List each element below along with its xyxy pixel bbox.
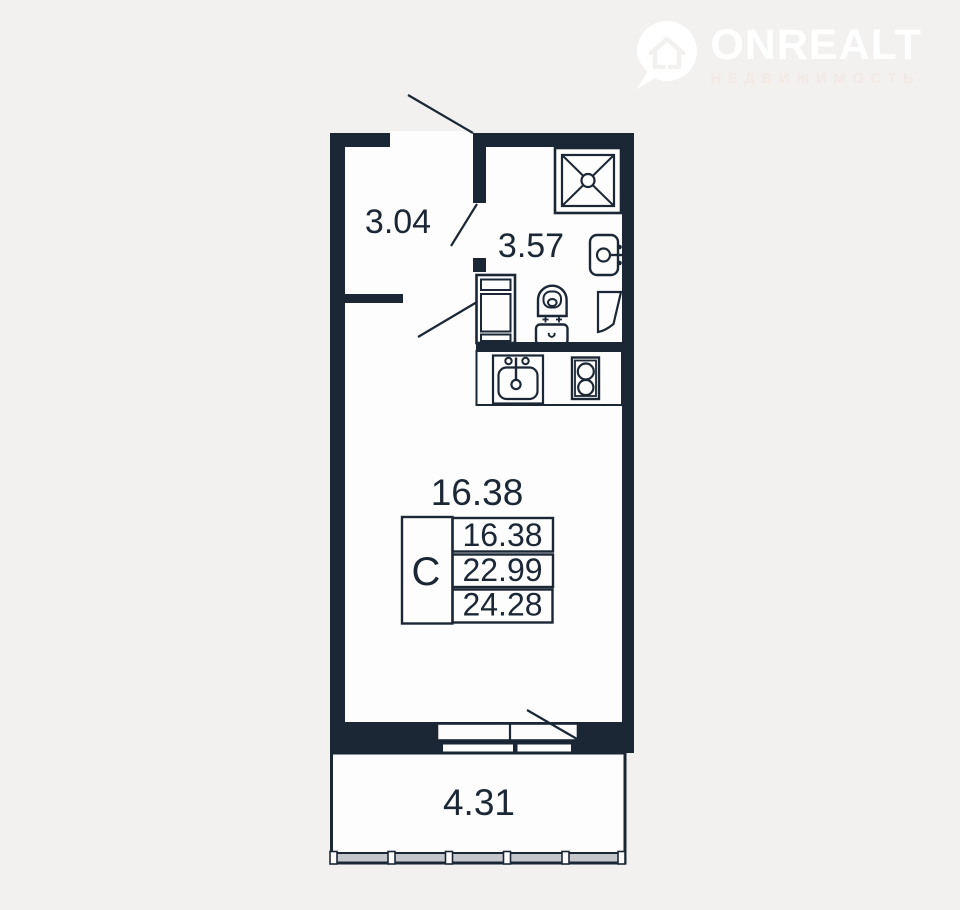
wall-top-right <box>473 133 634 147</box>
room-label-balcony: 4.31 <box>443 782 515 823</box>
wall-right <box>622 133 634 753</box>
wall-left <box>330 133 345 753</box>
floor-plan: 3.04 3.57 16.38 4.31 С 16.38 22.99 24.28 <box>0 0 960 910</box>
table-value-living: 16.38 <box>462 517 542 553</box>
room-label-living: 16.38 <box>431 472 524 513</box>
wall-hallway-bottom <box>330 294 403 303</box>
table-type-label: С <box>412 550 441 594</box>
wall-stub-bathroom-bottom <box>473 258 486 272</box>
room-label-bathroom: 3.57 <box>498 227 564 265</box>
balcony-glazing <box>333 853 624 863</box>
entrance-door-swing <box>408 95 473 133</box>
table-value-overall: 24.28 <box>462 587 542 623</box>
room-label-hallway: 3.04 <box>365 203 431 241</box>
table-value-total: 22.99 <box>462 552 542 588</box>
wall-stub-bathroom-top <box>473 147 486 203</box>
entrance-opening <box>390 131 473 147</box>
